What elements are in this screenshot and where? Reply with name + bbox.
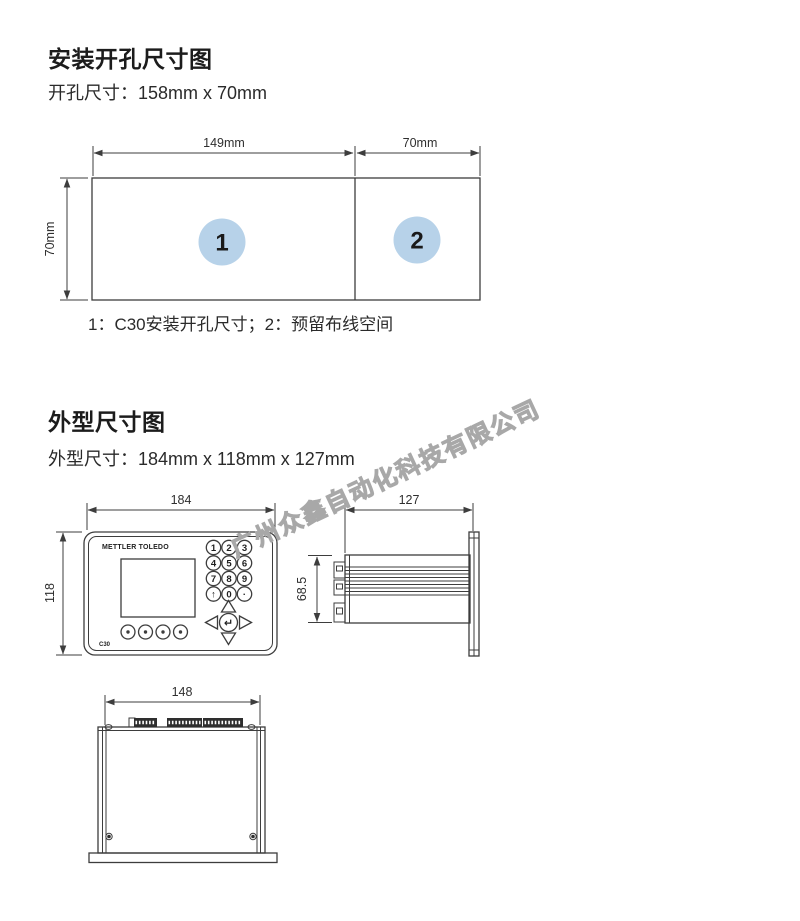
connector-detail	[337, 584, 343, 589]
brand-logo-text: METTLER TOLEDO	[102, 544, 169, 551]
outline-section-title: 外型尺寸图	[48, 403, 166, 437]
device-screen	[121, 559, 195, 617]
dim-label-148: 148	[172, 685, 193, 699]
outline-bottom-diagram: 148	[60, 685, 340, 880]
screw-center	[107, 835, 111, 839]
front-panel-plate	[89, 853, 277, 863]
dim-label-184: 184	[171, 493, 192, 507]
cutout-subtitle: 开孔尺寸：158mm x 70mm	[48, 79, 267, 105]
nav-up-icon	[222, 601, 236, 613]
keypad-key-label: 7	[211, 574, 216, 585]
keypad-key-label: 2	[226, 543, 231, 554]
keypad-key-label: 5	[226, 559, 232, 570]
dim-label-70mm-height: 70mm	[43, 222, 57, 257]
dim-label-118: 118	[43, 583, 57, 603]
keypad-key-label: 3	[242, 543, 247, 554]
cutout-caption: 1：C30安装开孔尺寸；2：预留布线空间	[88, 310, 393, 335]
outline-front-side-diagram: 184 118 METTLER TOLEDO 1 2 3 4 5 6 7 8	[40, 486, 500, 681]
keypad-key-label: 8	[226, 574, 231, 585]
dim-label-68-5: 68.5	[295, 577, 309, 601]
keypad-key-label: 9	[242, 574, 247, 585]
connector	[334, 603, 345, 622]
softkey-dot	[179, 630, 182, 633]
enter-icon: ↵	[224, 617, 233, 630]
terminal-strip	[129, 718, 243, 727]
nav-down-icon	[222, 633, 236, 645]
numeric-keypad: 1 2 3 4 5 6 7 8 9 ↑ 0 ·	[206, 540, 251, 601]
keypad-key-label: 6	[242, 559, 247, 570]
heatsink-fins	[345, 567, 469, 595]
dim-label-127: 127	[399, 493, 420, 507]
keypad-key-label: 0	[226, 590, 231, 601]
dim-label-149mm: 149mm	[203, 136, 245, 150]
badge-2-label: 2	[410, 228, 423, 255]
model-label: C30	[99, 642, 111, 648]
up-arrow-icon: ↑	[211, 590, 216, 601]
keypad-key-label: 1	[211, 543, 217, 554]
cutout-section-title: 安装开孔尺寸图	[48, 40, 213, 74]
connector	[334, 580, 345, 595]
cutout-diagram: 149mm 70mm 70mm 1 2	[40, 128, 500, 313]
badge-1-label: 1	[215, 230, 228, 257]
softkey-dot	[161, 630, 164, 633]
screw-center	[251, 835, 255, 839]
connector-detail	[337, 608, 343, 614]
nav-left-icon	[206, 616, 218, 629]
softkey-dot	[126, 630, 129, 633]
connector	[334, 562, 345, 578]
keypad-key-label: 4	[211, 559, 217, 570]
rear-connectors	[334, 562, 345, 622]
manual-page: 安装开孔尺寸图 开孔尺寸：158mm x 70mm 149mm 70mm 70m…	[0, 0, 800, 921]
nav-right-icon	[240, 616, 252, 629]
connector-detail	[337, 566, 343, 571]
outline-subtitle: 外型尺寸：184mm x 118mm x 127mm	[48, 445, 355, 471]
dim-label-70mm-reserve: 70mm	[403, 136, 438, 150]
keypad-key-label: ·	[243, 590, 246, 601]
nav-cluster: ↵	[206, 601, 252, 645]
bottom-housing	[98, 727, 265, 853]
softkey-row	[121, 625, 188, 639]
softkey-dot	[144, 630, 147, 633]
side-chassis	[345, 555, 470, 623]
